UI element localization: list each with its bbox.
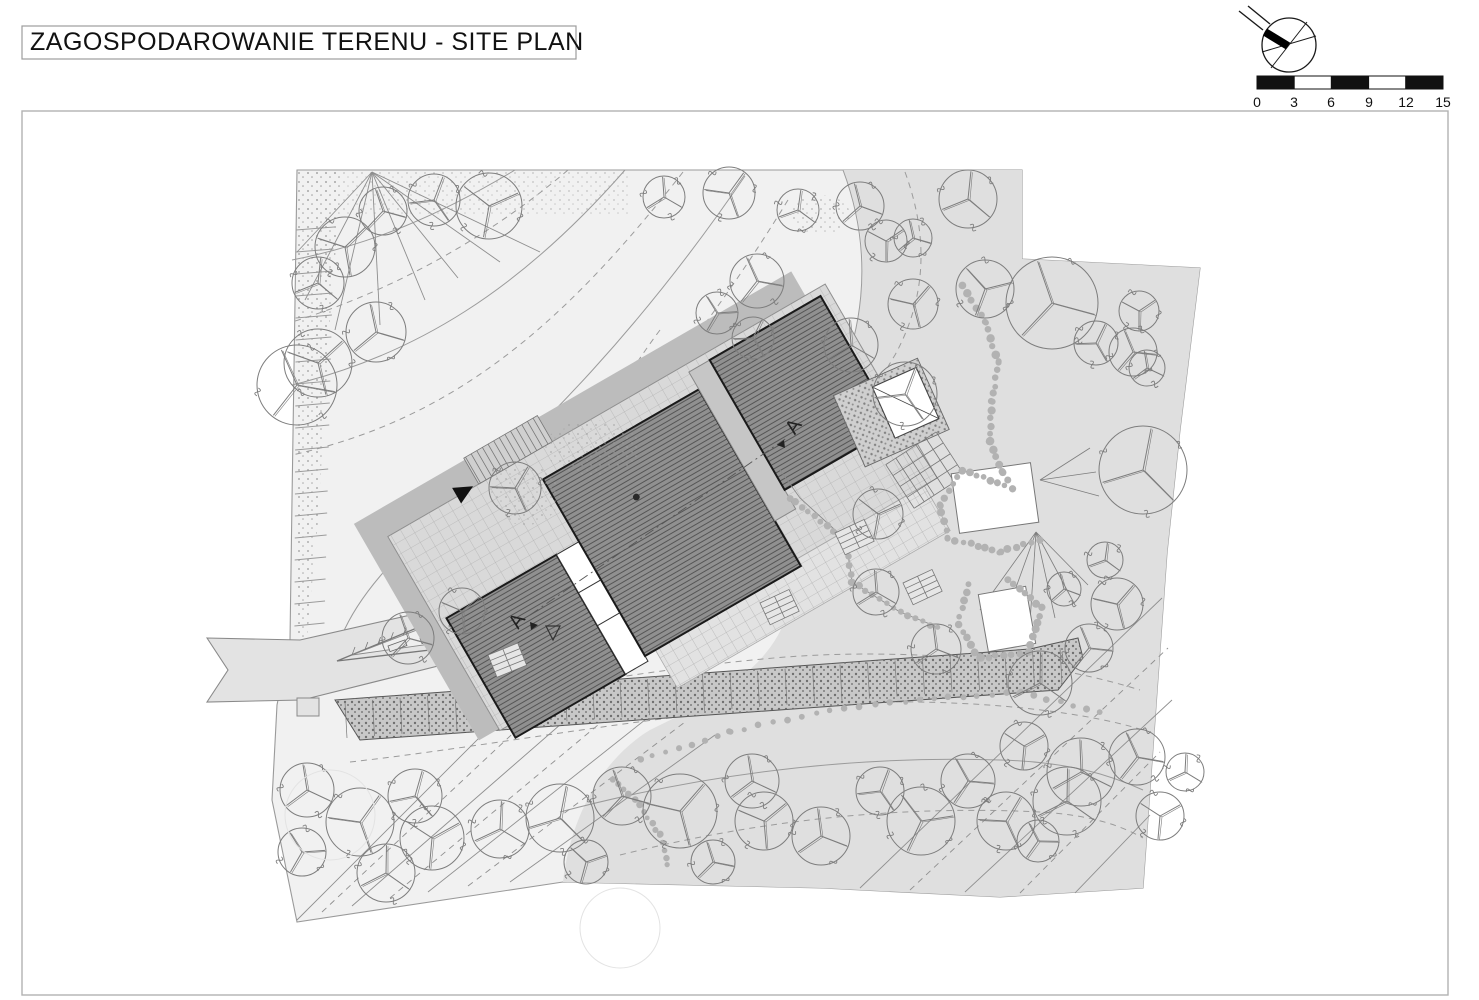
stone-path-stone (1032, 600, 1040, 608)
stone-path-stone (814, 710, 819, 715)
stone-path-stone (986, 654, 993, 661)
stone-path-stone (1043, 696, 1050, 703)
scale-bar-segment (1406, 76, 1443, 89)
stone-path-stone (663, 855, 669, 861)
stone-path-stone (728, 729, 734, 735)
stone-path-stone (1097, 709, 1103, 715)
stone-path-stone (877, 596, 883, 602)
stone-path-stone (898, 609, 904, 615)
stone-path-stone (992, 384, 998, 390)
stone-path-stone (981, 474, 987, 480)
stone-path-stone (1029, 633, 1037, 641)
stone-path-stone (770, 719, 775, 724)
scale-bar-segment (1331, 76, 1368, 89)
stone-path-stone (988, 406, 996, 414)
scale-label-6: 6 (1327, 94, 1335, 110)
stone-path-stone (944, 528, 950, 534)
stone-path-stone (987, 431, 993, 437)
stone-path-stone (991, 350, 1000, 359)
stone-path-stone (975, 543, 982, 550)
site-plan-drawing: ZAGOSPODAROWANIE TERENU - SITE PLAN 0 3 … (0, 0, 1479, 1000)
stone-path-stone (940, 517, 948, 525)
stone-path-stone (999, 469, 1006, 476)
stone-path-stone (645, 815, 650, 820)
scale-label-15: 15 (1435, 94, 1451, 110)
scale-label-3: 3 (1290, 94, 1298, 110)
stone-path-stone (960, 605, 966, 611)
site-area: A A (207, 167, 1204, 968)
stone-path-stone (664, 862, 669, 867)
stone-path-stone (1010, 486, 1016, 492)
stone-path-stone (1020, 541, 1026, 547)
stone-path-stone (967, 297, 974, 304)
stone-path-stone (994, 479, 1001, 486)
page-title: ZAGOSPODAROWANIE TERENU - SITE PLAN (30, 28, 584, 56)
stone-path-stone (992, 453, 999, 460)
stone-path-stone (805, 509, 811, 515)
stone-path-stone (1002, 483, 1008, 489)
stone-path-stone (799, 714, 805, 720)
stone-path-stone (856, 703, 863, 710)
stone-path-stone (1000, 652, 1007, 659)
stone-path-stone (1027, 594, 1034, 601)
stone-path-stone (961, 694, 967, 700)
scale-label-0: 0 (1253, 94, 1261, 110)
top-stipple (300, 172, 630, 216)
stone-path-stone (977, 654, 985, 662)
stone-path-stone (994, 366, 1001, 373)
scale-label-9: 9 (1365, 94, 1373, 110)
stone-path-stone (663, 750, 668, 755)
stone-path-stone (742, 727, 747, 732)
stone-path-stone (959, 467, 966, 474)
stone-path-stone (945, 694, 952, 701)
stone-path-stone (935, 625, 940, 630)
stone-path-stone (932, 696, 937, 701)
stone-path-stone (918, 697, 923, 702)
stone-path-stone (990, 692, 995, 697)
stone-path-stone (702, 738, 708, 744)
north-arrow-icon (1239, 6, 1316, 72)
stone-path-stone (986, 438, 994, 446)
stone-path-stone (983, 320, 989, 326)
terrace-pad-south (978, 586, 1035, 651)
stone-path-stone (920, 618, 925, 623)
stone-path-stone (989, 343, 995, 349)
stone-path-stone (1036, 613, 1043, 620)
stone-path-stone (967, 641, 975, 649)
stone-path-stone (676, 745, 682, 751)
stone-path-stone (1083, 706, 1090, 713)
scale-bar-segment (1369, 76, 1406, 89)
stone-path-stone (963, 589, 971, 597)
stone-path-stone (862, 588, 868, 594)
stone-path-stone (937, 508, 945, 516)
stone-path-stone (872, 701, 878, 707)
stone-path-stone (649, 820, 656, 827)
stone-path-stone (990, 389, 997, 396)
stone-path-stone (1004, 576, 1011, 583)
stone-path-stone (887, 699, 893, 705)
stone-path-stone (950, 481, 956, 487)
stone-path-stone (961, 540, 967, 546)
stone-path-stone (966, 468, 974, 476)
stone-path-stone (841, 705, 848, 712)
stone-path-stone (884, 601, 889, 606)
scale-label-12: 12 (1398, 94, 1414, 110)
stone-path-stone (1010, 581, 1017, 588)
stone-path-stone (1070, 703, 1075, 708)
stone-path-stone (650, 753, 655, 758)
stone-path-stone (944, 535, 950, 541)
stone-path-stone (989, 446, 997, 454)
stone-path-stone (755, 722, 762, 729)
stone-path-stone (1033, 619, 1041, 627)
stone-path-stone (963, 289, 971, 297)
stone-path-stone (956, 622, 962, 628)
stone-path-stone (1036, 536, 1043, 543)
gravel-spray (545, 420, 640, 475)
stone-path-stone (1004, 477, 1011, 484)
stone-path-stone (638, 756, 645, 763)
stone-path-stone (848, 571, 855, 578)
stone-path-stone (996, 550, 1001, 555)
stone-path-stone (987, 477, 995, 485)
stone-path-stone (812, 513, 818, 519)
stone-path-stone (992, 374, 998, 380)
stone-path-stone (995, 461, 1003, 469)
stone-path-stone (817, 519, 823, 525)
stone-path-stone (992, 652, 998, 658)
stone-path-stone (625, 791, 632, 798)
scale-bar-segment (1294, 76, 1331, 89)
gravel-spray (490, 465, 560, 525)
stone-path-stone (715, 733, 721, 739)
stone-path-stone (1028, 540, 1034, 546)
stone-path-stone (689, 742, 696, 749)
stone-path-stone (856, 582, 863, 589)
stone-path-stone (946, 488, 953, 495)
stone-path-stone (1008, 651, 1015, 658)
stone-path-stone (987, 423, 994, 430)
stone-path-stone (657, 831, 664, 838)
stone-path-stone (951, 537, 959, 545)
stone-path-stone (784, 717, 791, 724)
stone-path-stone (986, 334, 994, 342)
stone-path-stone (792, 498, 799, 505)
stone-path-stone (799, 504, 806, 511)
stone-path-stone (846, 562, 853, 569)
stone-path-stone (960, 597, 968, 605)
stone-path-stone (827, 708, 832, 713)
stone-path-stone (1016, 585, 1024, 593)
stone-path-stone (637, 802, 643, 808)
stone-path-stone (956, 614, 962, 620)
scale-bar: 0 3 6 9 12 15 (1253, 76, 1451, 110)
stone-path-stone (1013, 544, 1020, 551)
stone-path-stone (968, 540, 975, 547)
stone-path-stone (1026, 641, 1034, 649)
stone-path-stone (981, 544, 989, 552)
stone-path-stone (959, 282, 967, 290)
stone-path-stone (966, 581, 972, 587)
stone-path-stone (904, 612, 911, 619)
stone-path-stone (989, 547, 996, 554)
stone-path-stone (912, 615, 918, 621)
stone-path-stone (987, 415, 993, 421)
stone-path-stone (974, 693, 980, 699)
scale-bar-segment (1257, 76, 1294, 89)
stone-path-stone (1003, 545, 1011, 553)
stone-path-stone (1030, 692, 1037, 699)
stone-path-stone (988, 398, 994, 404)
title-box: ZAGOSPODAROWANIE TERENU - SITE PLAN (22, 26, 584, 59)
stone-path-stone (824, 522, 831, 529)
stone-path-stone (937, 502, 944, 509)
stone-path-stone (941, 495, 948, 502)
stone-path-stone (996, 358, 1002, 364)
stone-path-stone (903, 700, 908, 705)
stone-path-stone (963, 634, 971, 642)
stone-path-stone (985, 326, 992, 333)
stone-path-stone (954, 474, 960, 480)
stone-path-stone (974, 473, 980, 479)
